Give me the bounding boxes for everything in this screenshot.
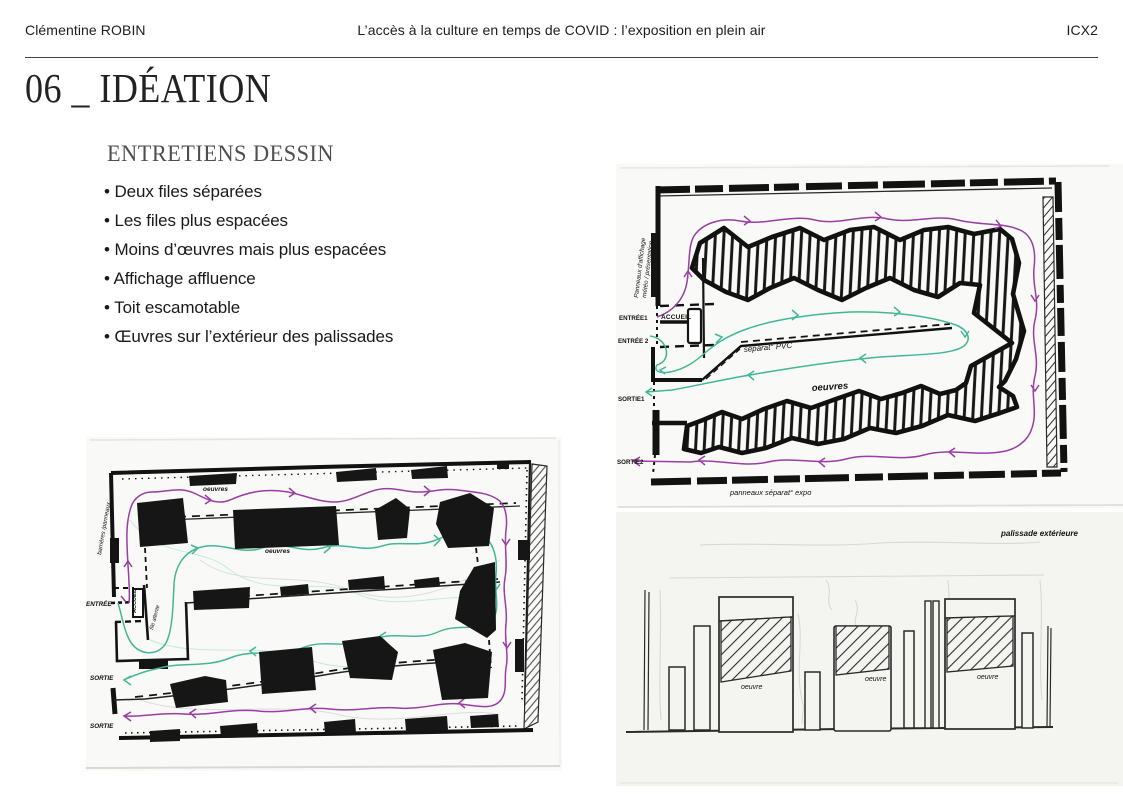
svg-text:oeuvre: oeuvre — [977, 674, 999, 681]
svg-text:ENTRÉE1: ENTRÉE1 — [619, 314, 648, 322]
svg-text:oeuvres: oeuvres — [203, 486, 228, 493]
svg-text:SORTIE: SORTIE — [90, 675, 114, 682]
svg-text:SORTIE: SORTIE — [90, 723, 114, 730]
svg-text:oeuvres: oeuvres — [265, 548, 290, 555]
svg-text:ACCUEIL: ACCUEIL — [132, 588, 138, 613]
svg-text:ACCUEIL: ACCUEIL — [661, 314, 691, 321]
svg-text:palissade extérieure: palissade extérieure — [1000, 529, 1078, 538]
svg-text:ENTRÉE 2: ENTRÉE 2 — [618, 337, 649, 345]
svg-text:SORTIE2: SORTIE2 — [617, 459, 644, 466]
svg-text:SORTIE1: SORTIE1 — [618, 396, 645, 403]
svg-text:ENTRÉE: ENTRÉE — [86, 599, 112, 608]
svg-text:oeuvre: oeuvre — [865, 676, 887, 683]
svg-text:panneaux séparat° expo: panneaux séparat° expo — [729, 488, 811, 497]
svg-text:oeuvre: oeuvre — [741, 684, 763, 691]
